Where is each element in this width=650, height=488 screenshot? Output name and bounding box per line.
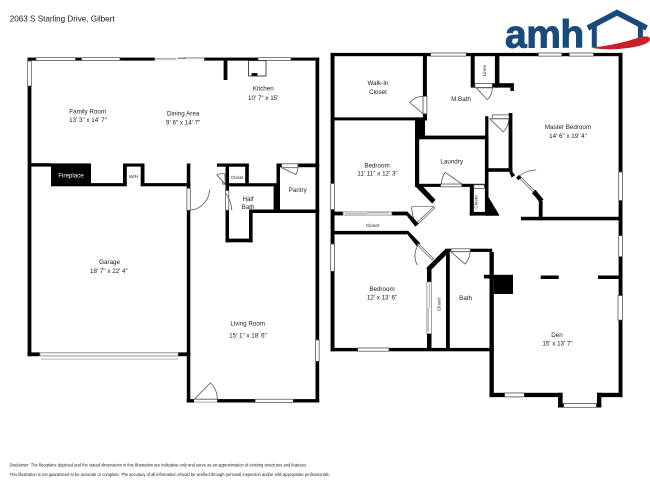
svg-text:Pantry: Pantry [289, 187, 308, 194]
svg-text:Den: Den [551, 332, 563, 339]
svg-text:amh: amh [505, 13, 584, 56]
svg-text:Disclaimer: The floorplans dep: Disclaimer: The floorplans depicted and … [10, 463, 308, 468]
svg-text:Closet: Closet [366, 223, 380, 228]
svg-text:2063 S Starling Drive, Gilbert: 2063 S Starling Drive, Gilbert [10, 15, 116, 24]
svg-text:18' 7" x 22' 4": 18' 7" x 22' 4" [90, 268, 128, 275]
svg-text:W/H: W/H [129, 174, 138, 179]
svg-text:Linen: Linen [482, 64, 487, 76]
svg-text:Bedroom: Bedroom [364, 163, 389, 170]
svg-text:Laundry: Laundry [440, 158, 463, 165]
svg-text:Closet: Closet [231, 175, 244, 180]
svg-text:15' 1" x 18' 6": 15' 1" x 18' 6" [229, 332, 267, 339]
svg-text:Family Room: Family Room [69, 109, 106, 116]
svg-text:11' 11" x 12' 3": 11' 11" x 12' 3" [357, 171, 397, 178]
svg-text:14' 6" x 19' 4": 14' 6" x 19' 4" [549, 133, 587, 140]
svg-text:Closet: Closet [474, 195, 479, 209]
svg-text:Dining Area: Dining Area [167, 111, 200, 118]
svg-text:Closet: Closet [369, 89, 387, 96]
svg-text:13' 3" x 14' 7": 13' 3" x 14' 7" [69, 117, 107, 124]
svg-text:12' x 13' 6": 12' x 13' 6" [367, 294, 397, 301]
svg-text:Bedroom: Bedroom [369, 286, 394, 293]
svg-text:15' x 13' 7": 15' x 13' 7" [542, 340, 572, 347]
svg-text:9' 6" x 14' 7": 9' 6" x 14' 7" [166, 119, 200, 126]
svg-text:Master Bedroom: Master Bedroom [545, 124, 591, 131]
svg-text:Half: Half [242, 196, 253, 203]
svg-text:M.Bath: M.Bath [451, 96, 471, 103]
svg-text:Kitchen: Kitchen [253, 86, 274, 93]
svg-text:Walk-In: Walk-In [368, 80, 389, 87]
svg-text:Bath: Bath [459, 295, 472, 302]
svg-text:Living Room: Living Room [230, 321, 265, 328]
svg-text:Fireplace: Fireplace [58, 173, 84, 180]
svg-text:This illustration is not guara: This illustration is not guaranteed to b… [10, 472, 330, 477]
svg-text:10' 7" x 15': 10' 7" x 15' [248, 95, 278, 102]
svg-text:Garage: Garage [99, 259, 120, 266]
svg-text:Closet: Closet [437, 297, 442, 311]
